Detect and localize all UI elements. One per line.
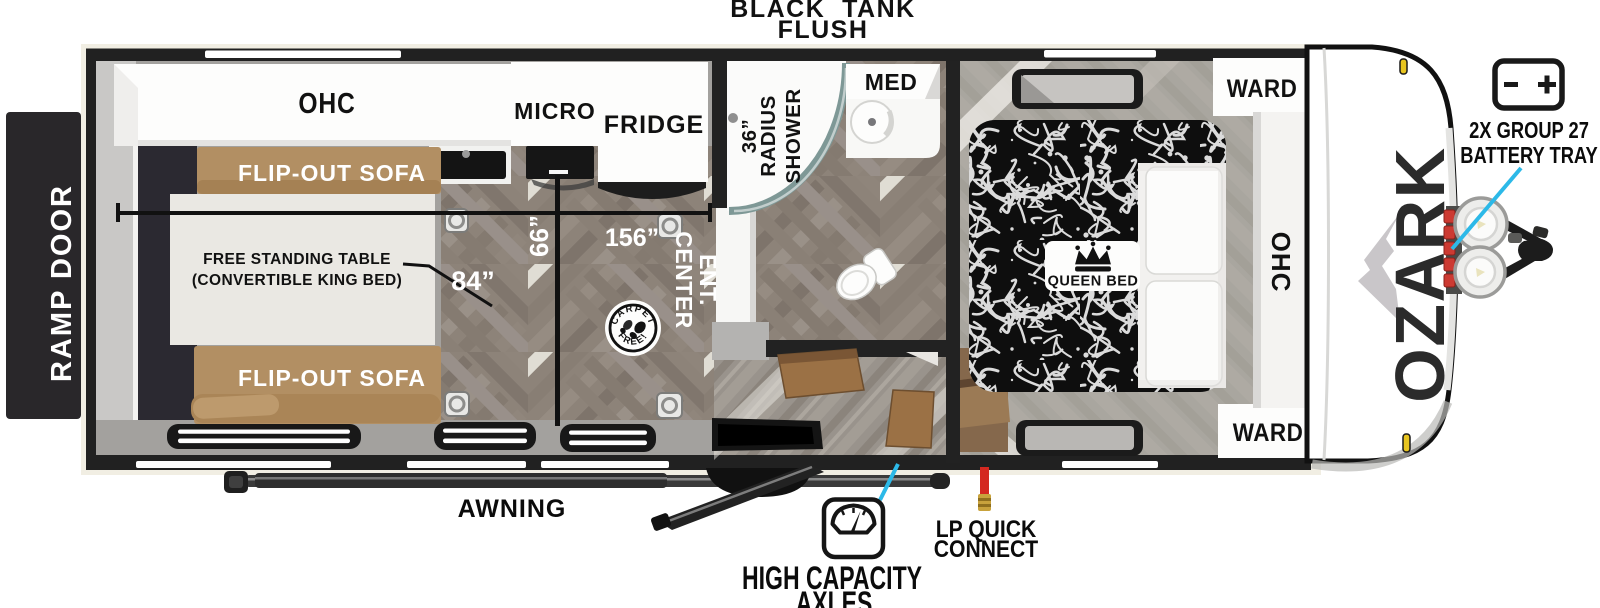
svg-text:OHC: OHC	[298, 87, 355, 119]
svg-text:2X GROUP 27: 2X GROUP 27	[1469, 118, 1589, 144]
svg-text:SHOWER: SHOWER	[782, 88, 805, 183]
svg-text:QUEEN BED: QUEEN BED	[1048, 274, 1139, 290]
svg-text:AXLES: AXLES	[796, 585, 873, 608]
svg-text:FREE STANDING TABLE: FREE STANDING TABLE	[203, 251, 391, 268]
svg-text:RAMP DOOR: RAMP DOOR	[46, 184, 78, 382]
svg-text:MICRO: MICRO	[514, 98, 596, 124]
svg-text:66”: 66”	[524, 215, 554, 257]
svg-text:WARD: WARD	[1227, 75, 1297, 103]
svg-text:RADIUS: RADIUS	[757, 95, 780, 177]
svg-text:BATTERY TRAY: BATTERY TRAY	[1460, 143, 1597, 169]
svg-text:FLUSH: FLUSH	[778, 16, 869, 44]
svg-text:AWNING: AWNING	[458, 495, 567, 523]
svg-text:156”: 156”	[605, 224, 659, 252]
svg-text:WARD: WARD	[1233, 419, 1303, 447]
svg-text:84”: 84”	[451, 266, 495, 296]
svg-text:OHC: OHC	[1266, 232, 1296, 293]
svg-text:CONNECT: CONNECT	[934, 536, 1039, 563]
svg-text:FLIP-OUT SOFA: FLIP-OUT SOFA	[238, 365, 426, 391]
svg-text:(CONVERTIBLE KING BED): (CONVERTIBLE KING BED)	[192, 272, 402, 289]
svg-text:FRIDGE: FRIDGE	[604, 111, 704, 139]
svg-text:MED: MED	[865, 69, 918, 95]
svg-text:FLIP-OUT SOFA: FLIP-OUT SOFA	[238, 160, 426, 186]
